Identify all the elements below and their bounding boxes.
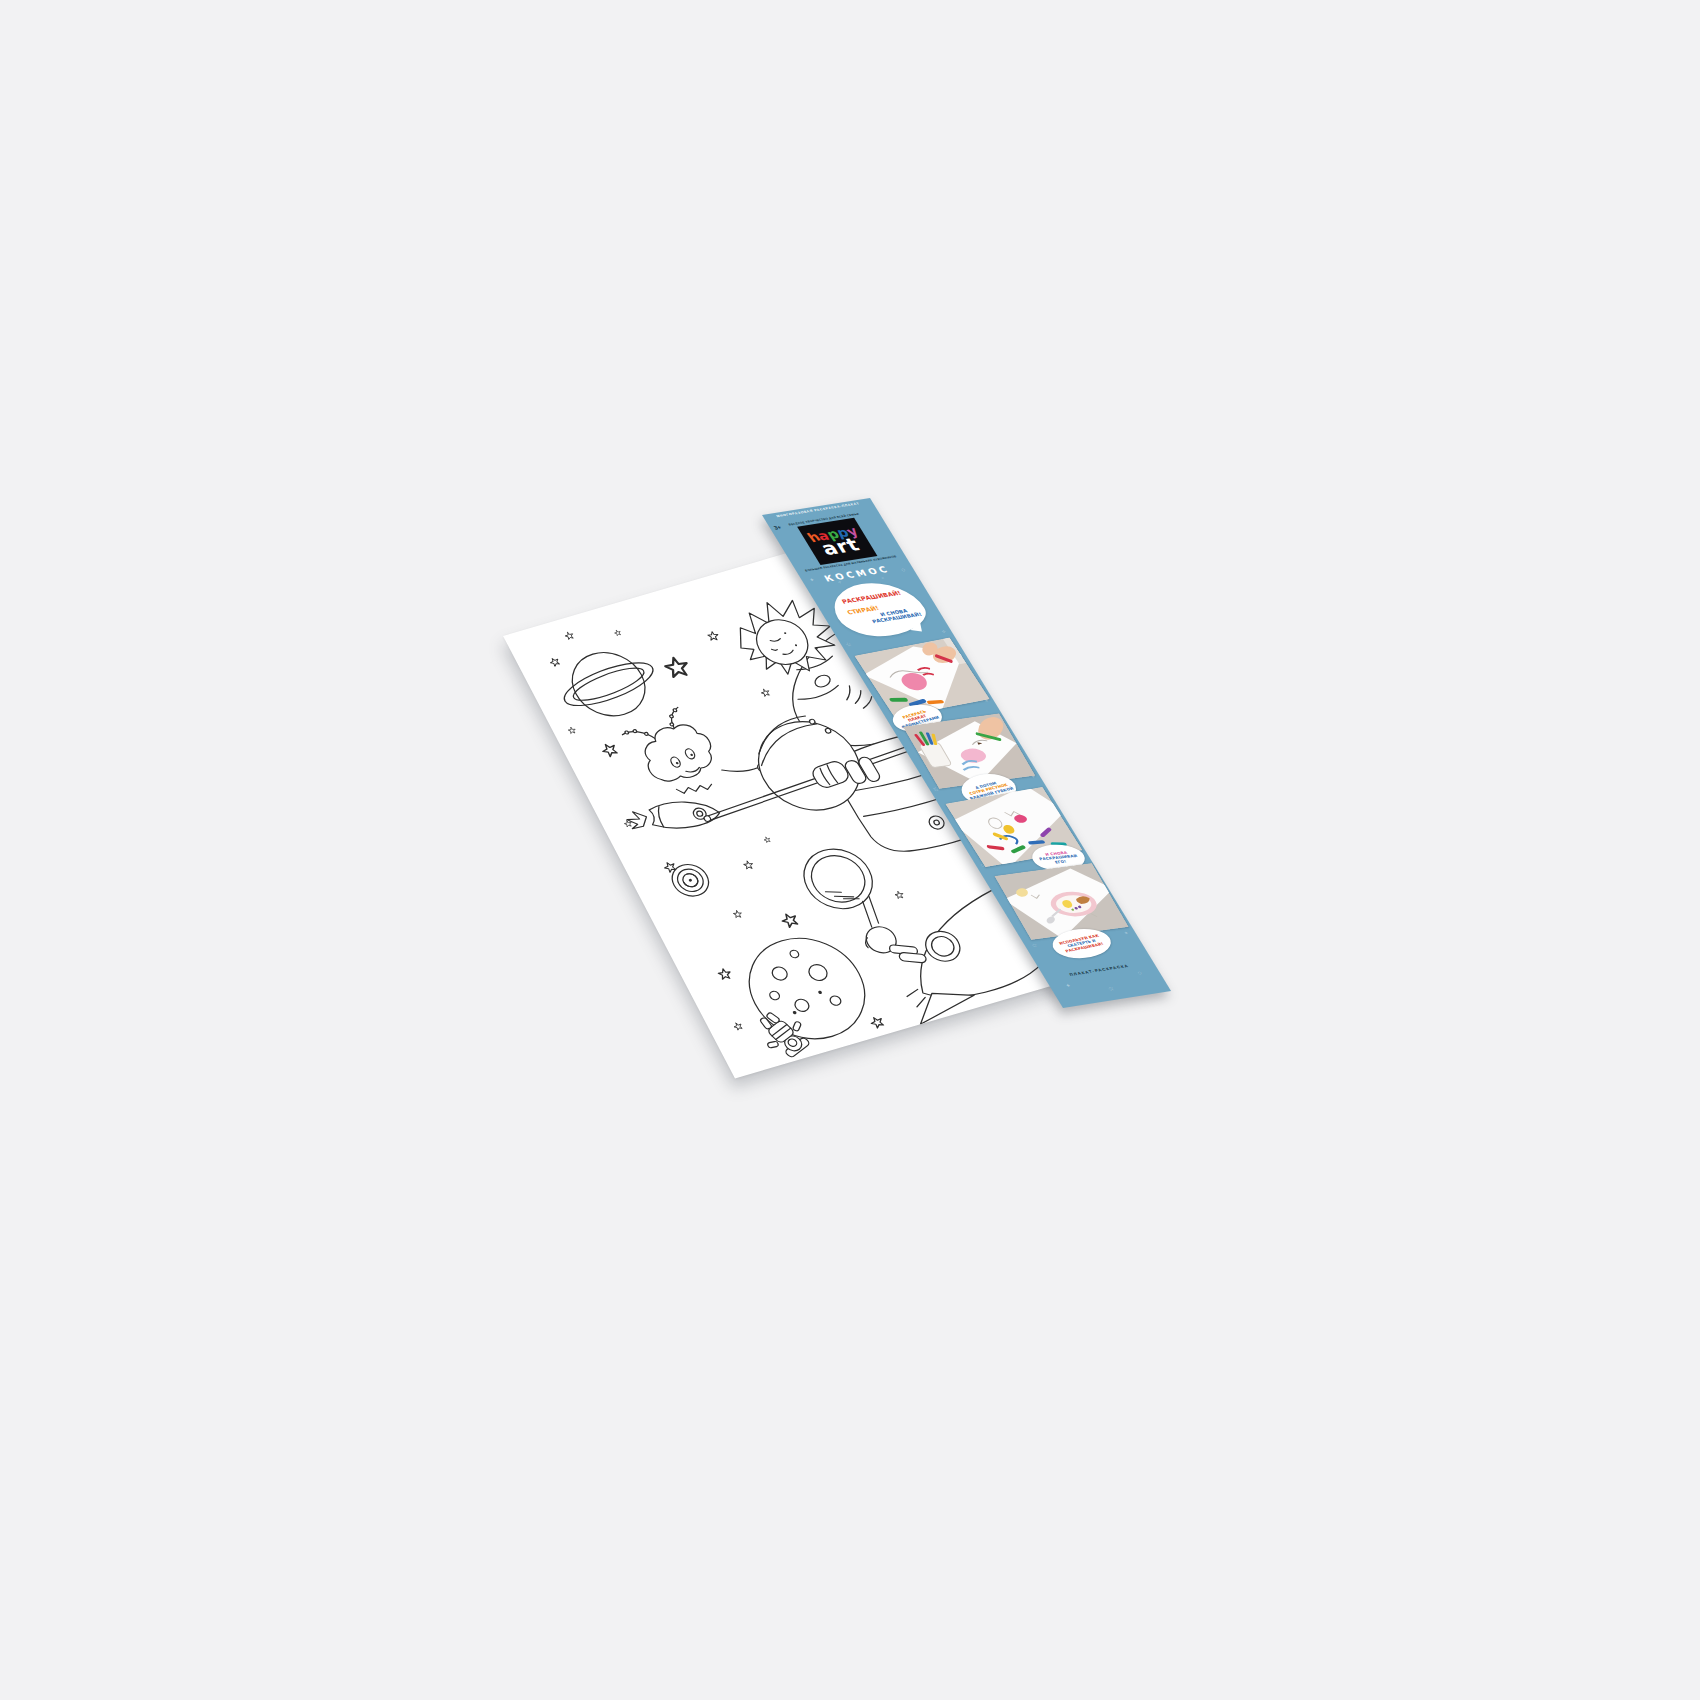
cratered-moon-icon [730, 926, 884, 1052]
doodle-icon: ✦ [1064, 983, 1072, 989]
doodle-icon: ☆ [1030, 943, 1038, 948]
doodle-icon: ☆ [843, 641, 853, 648]
product-photo: ✦○✧○☆✧○✶☆✦○✧☆✶✦○☆ МНОГОРАЗОВАЯ РАСКРАСКА… [0, 0, 1700, 1700]
doodle-icon: ☆ [1106, 985, 1116, 993]
saturn-planet-icon [546, 640, 671, 728]
doodle-icon: ○ [1136, 970, 1143, 976]
magnifier-icon [793, 842, 884, 917]
doodle-icon: ✶ [1123, 931, 1130, 936]
doodle-icon: ✧ [940, 629, 947, 634]
badge-line: ЕГО! [1054, 859, 1067, 864]
doodle-icon: ○ [880, 576, 885, 580]
alien-icon [617, 693, 769, 804]
